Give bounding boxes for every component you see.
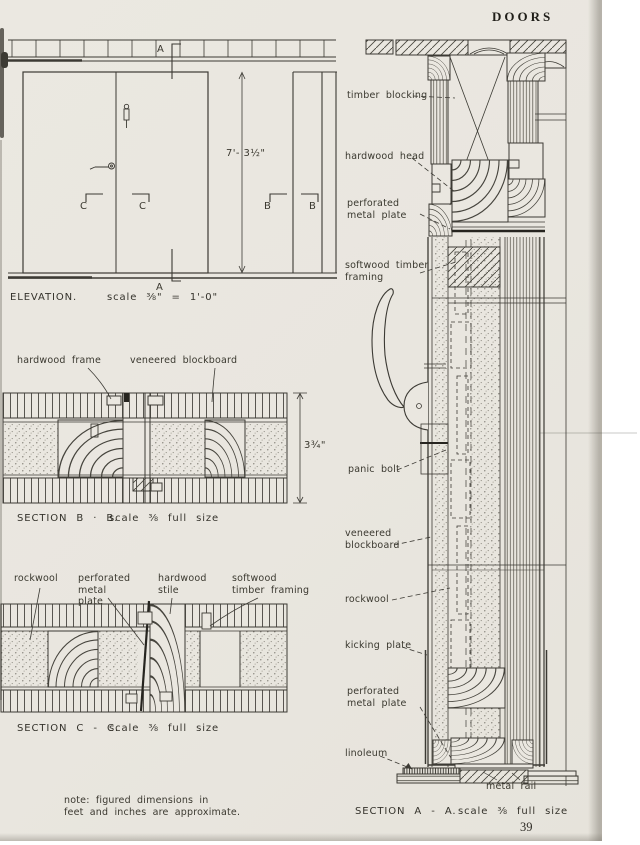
section-bb-scale: scale ⅜ full size [109,513,219,524]
book-page: DOORS 39 7'- 3½" A A C C B B ELEVATION. … [0,0,640,845]
section-marker-c-right: C [139,201,146,212]
label-perforated-metal-plate-cc: perforated metal plate [78,573,134,608]
elevation-scale: scale ⅜" = 1'-0" [107,292,218,303]
section-cc-drawing [1,588,287,712]
label-perforated-metal-plate-top: perforated metal plate [347,198,427,221]
section-aa-scale: scale ⅜ full size [458,806,568,817]
label-veneered-blockboard-bb: veneered blockboard [130,355,237,367]
label-hardwood-stile: hardwood stile [158,573,210,596]
note: note: figured dimensions in feet and inc… [64,795,240,818]
label-panic-bolt: panic bolt [348,464,400,476]
label-rockwool-aa: rockwool [345,594,389,606]
elevation-drawing [8,40,337,281]
section-marker-b-right: B [309,201,316,212]
note-line-2: feet and inches are approximate. [64,807,240,819]
label-veneered-blockboard-aa: veneered blockboard [345,528,411,551]
label-rockwool-cc: rockwool [14,573,74,585]
label-kicking-plate: kicking plate [345,640,411,652]
section-aa-caption: SECTION A - A. [355,806,457,817]
label-softwood-timber-framing-cc: softwood timber framing [232,573,314,596]
section-marker-c-left: C [80,201,87,212]
label-softwood-timber-framing-aa: softwood timber framing [345,260,431,283]
elevation-height-dimension: 7'- 3½" [226,148,265,159]
section-cc-caption: SECTION C - C. [17,723,119,734]
label-timber-blocking: timber blocking [347,90,427,102]
page-header: DOORS [492,9,553,25]
section-bb-caption: SECTION B · B. [17,513,118,524]
label-linoleum: linoleum [345,748,387,760]
note-line-1: note: figured dimensions in [64,795,240,807]
label-perforated-metal-plate-bottom: perforated metal plate [347,686,427,709]
section-cc-scale: scale ⅜ full size [109,723,219,734]
label-hardwood-frame: hardwood frame [17,355,101,367]
elevation-caption: ELEVATION. [10,292,77,303]
page-number: 39 [520,820,533,835]
section-marker-b-left: B [264,201,271,212]
label-metal-rail: metal rail [486,781,536,793]
door-thickness-dimension: 3¾" [304,440,326,451]
section-bb-drawing [3,368,307,503]
technical-drawing [0,0,640,845]
section-marker-a-top: A [157,44,164,55]
label-hardwood-head: hardwood head [345,151,424,163]
